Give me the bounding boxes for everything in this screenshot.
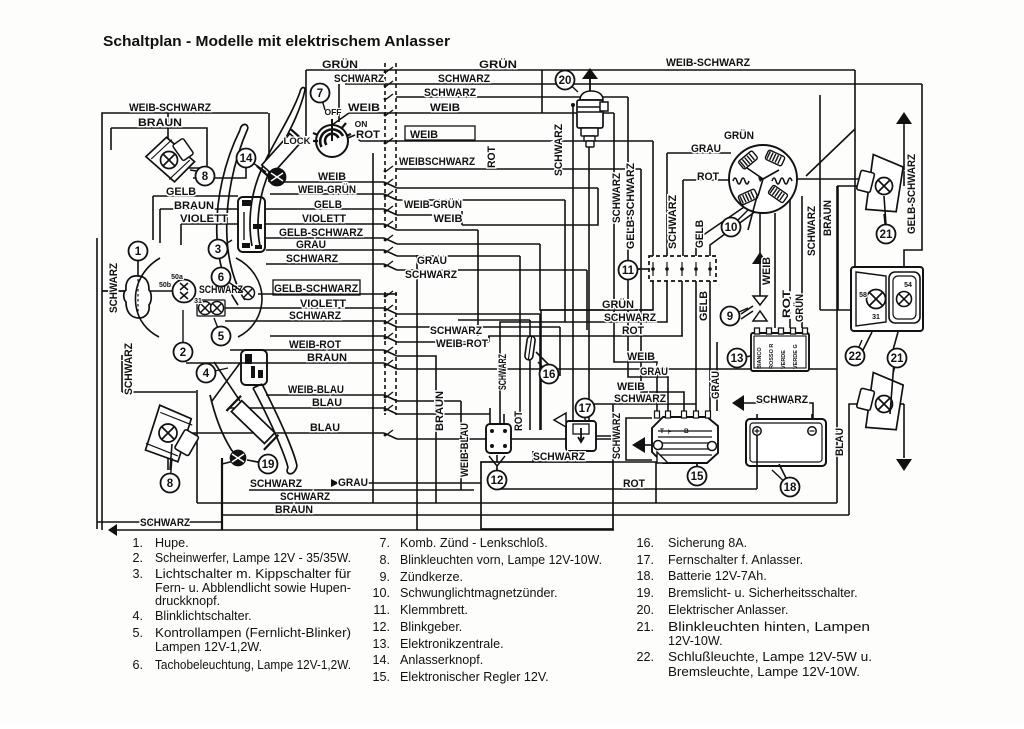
svg-text:ROT: ROT	[781, 290, 793, 318]
svg-text:SCHWARZ: SCHWARZ	[756, 394, 808, 406]
svg-text:ROT: ROT	[356, 129, 380, 141]
svg-text:SCHWARZ: SCHWARZ	[611, 173, 623, 223]
svg-text:Lampen 12V-1,2W.: Lampen 12V-1,2W.	[155, 640, 262, 654]
svg-text:Elektrischer Anlasser.: Elektrischer Anlasser.	[668, 603, 788, 617]
svg-text:50a: 50a	[171, 274, 183, 281]
svg-text:21: 21	[880, 229, 893, 241]
svg-text:19.: 19.	[636, 586, 654, 600]
svg-text:BRAUN: BRAUN	[434, 391, 446, 431]
svg-text:Blinkleuchten hinten, Lampen: Blinkleuchten hinten, Lampen	[668, 620, 870, 634]
svg-text:Blinkgeber.: Blinkgeber.	[400, 620, 462, 634]
svg-text:WEIB-SCHWARZ: WEIB-SCHWARZ	[666, 57, 750, 69]
svg-text:15.: 15.	[372, 670, 390, 684]
svg-text:WEIB: WEIB	[761, 257, 773, 285]
svg-text:Anlasserknopf.: Anlasserknopf.	[400, 653, 483, 667]
svg-text:Fernschalter f. Anlasser.: Fernschalter f. Anlasser.	[668, 553, 803, 567]
svg-text:5: 5	[218, 331, 225, 343]
svg-text:11: 11	[622, 265, 635, 277]
svg-text:20: 20	[559, 75, 572, 87]
svg-text:SCHWARZ: SCHWARZ	[334, 73, 384, 85]
svg-text:Komb. Zünd - Lenkschloß.: Komb. Zünd - Lenkschloß.	[400, 536, 548, 550]
svg-text:6.: 6.	[132, 658, 143, 672]
svg-text:GRAU: GRAU	[296, 239, 326, 251]
svg-text:Schaltplan - Modelle mit elekt: Schaltplan - Modelle mit elektrischem An…	[103, 33, 450, 50]
svg-text:SCHWARZ: SCHWARZ	[424, 87, 476, 99]
svg-text:1: 1	[135, 246, 142, 258]
svg-text:WEIB-BLAU: WEIB-BLAU	[288, 384, 344, 396]
svg-text:SCHWARZ: SCHWARZ	[604, 312, 656, 324]
svg-text:SCHWARZ: SCHWARZ	[553, 124, 565, 176]
svg-text:GELB-SCHWARZ: GELB-SCHWARZ	[906, 154, 918, 234]
svg-text:11.: 11.	[373, 603, 390, 617]
svg-text:SCHWARZ: SCHWARZ	[140, 517, 190, 529]
svg-text:GELB: GELB	[166, 186, 196, 198]
svg-text:ON: ON	[355, 119, 368, 129]
svg-text:Schlußleuchte, Lampe 12V-5W u.: Schlußleuchte, Lampe 12V-5W u.	[668, 650, 872, 664]
svg-text:Zündkerze.: Zündkerze.	[400, 570, 463, 584]
svg-text:GRÜN: GRÜN	[724, 129, 754, 142]
svg-text:17: 17	[579, 403, 592, 415]
svg-text:SCHWARZ: SCHWARZ	[280, 491, 330, 503]
svg-text:WEIB: WEIB	[410, 129, 438, 141]
svg-text:Kontrollampen (Fernlicht-Blink: Kontrollampen (Fernlicht-Blinker)	[155, 626, 351, 640]
svg-text:SCHWARZ: SCHWARZ	[108, 263, 120, 313]
svg-text:12: 12	[491, 475, 504, 487]
svg-text:16: 16	[543, 369, 556, 381]
svg-text:GELB: GELB	[694, 220, 706, 248]
svg-text:WEIB-BLAU: WEIB-BLAU	[459, 423, 471, 477]
svg-text:Scheinwerfer, Lampe 12V - 35/3: Scheinwerfer, Lampe 12V - 35/35W.	[155, 551, 351, 565]
svg-text:BLAU: BLAU	[310, 422, 340, 434]
svg-text:BLAU: BLAU	[312, 397, 342, 409]
svg-text:Fern- u. Abblendlicht sowie Hu: Fern- u. Abblendlicht sowie Hupen-	[155, 581, 351, 595]
svg-text:50b: 50b	[159, 282, 171, 289]
svg-text:VIOLETT: VIOLETT	[180, 213, 228, 225]
svg-text:12.: 12.	[372, 620, 390, 634]
svg-text:ROSSO R: ROSSO R	[769, 344, 775, 369]
svg-text:WEIBSCHWARZ: WEIBSCHWARZ	[399, 156, 475, 168]
svg-text:SCHWARZ: SCHWARZ	[286, 253, 338, 265]
svg-text:Hupe.: Hupe.	[155, 536, 189, 550]
svg-text:BRAUN: BRAUN	[307, 352, 347, 364]
svg-text:8: 8	[167, 478, 174, 490]
svg-text:SCHWARZ: SCHWARZ	[250, 478, 302, 490]
svg-text:WEIB: WEIB	[627, 351, 655, 363]
svg-text:9: 9	[727, 311, 733, 323]
svg-text:31: 31	[872, 314, 880, 321]
svg-text:GRÜN: GRÜN	[602, 298, 634, 311]
svg-text:GRÜN: GRÜN	[793, 294, 806, 322]
svg-text:WEIB: WEIB	[348, 102, 380, 114]
svg-text:OFF: OFF	[325, 107, 342, 117]
svg-text:10: 10	[725, 222, 738, 234]
svg-text:GELB: GELB	[314, 199, 342, 211]
svg-text:15: 15	[691, 471, 704, 483]
svg-text:WEIB-ROT: WEIB-ROT	[289, 339, 341, 351]
svg-text:13.: 13.	[372, 637, 390, 651]
svg-text:SCHWARZ: SCHWARZ	[123, 343, 135, 395]
svg-text:SCHWARZ: SCHWARZ	[289, 310, 341, 322]
svg-text:BLAU: BLAU	[834, 428, 846, 456]
svg-text:22: 22	[849, 351, 862, 363]
svg-text:8: 8	[202, 171, 209, 183]
svg-text:SCHWARZ: SCHWARZ	[497, 354, 509, 390]
svg-text:21.: 21.	[636, 620, 654, 634]
svg-text:8.: 8.	[379, 553, 390, 567]
svg-text:WEIB: WEIB	[430, 102, 460, 114]
svg-text:BRAUN: BRAUN	[275, 504, 313, 516]
svg-text:22.: 22.	[636, 650, 654, 664]
svg-text:GRAU: GRAU	[338, 477, 368, 489]
svg-text:Lichtschalter m. Kippschalter: Lichtschalter m. Kippschalter für	[155, 567, 351, 581]
svg-text:9.: 9.	[379, 570, 390, 584]
svg-text:SCHWARZ: SCHWARZ	[667, 195, 679, 249]
svg-text:3: 3	[215, 244, 221, 256]
svg-text:14.: 14.	[372, 653, 390, 667]
svg-text:21: 21	[891, 353, 904, 365]
svg-text:SCHWARZ: SCHWARZ	[430, 325, 482, 337]
svg-text:13: 13	[731, 353, 744, 365]
svg-text:ROT: ROT	[486, 146, 498, 168]
svg-text:WEIB: WEIB	[617, 381, 645, 393]
svg-text:17.: 17.	[636, 553, 654, 567]
svg-text:ROT: ROT	[623, 478, 645, 490]
svg-text:Batterie 12V-7Ah.: Batterie 12V-7Ah.	[668, 569, 767, 583]
svg-text:GRAU: GRAU	[417, 255, 447, 267]
svg-text:B: B	[684, 428, 689, 435]
svg-text:LOCK: LOCK	[284, 136, 311, 147]
svg-text:58: 58	[859, 292, 867, 299]
svg-text:54: 54	[904, 282, 912, 289]
svg-text:BRAUN: BRAUN	[138, 117, 182, 129]
svg-text:VERDE G: VERDE G	[793, 344, 799, 369]
svg-text:GELB-SCHWARZ: GELB-SCHWARZ	[279, 227, 363, 239]
svg-text:16.: 16.	[636, 536, 654, 550]
svg-text:GELB-SCHWARZ: GELB-SCHWARZ	[274, 283, 358, 295]
svg-text:GRÜN: GRÜN	[479, 58, 517, 71]
svg-text:31: 31	[194, 298, 202, 305]
svg-text:12V-10W.: 12V-10W.	[668, 634, 723, 648]
svg-text:Elektronikzentrale.: Elektronikzentrale.	[400, 637, 504, 651]
svg-text:Blinkleuchten vorn, Lampe 12V-: Blinkleuchten vorn, Lampe 12V-10W.	[400, 553, 602, 567]
svg-text:19: 19	[262, 459, 275, 471]
svg-text:Blinklichtschalter.: Blinklichtschalter.	[155, 609, 252, 623]
svg-text:SCHWARZ: SCHWARZ	[806, 206, 818, 256]
svg-text:SCHWARZ: SCHWARZ	[405, 269, 457, 281]
svg-text:2: 2	[180, 347, 186, 359]
svg-text:WEIB-GRÜN: WEIB-GRÜN	[298, 183, 356, 196]
svg-text:Schwunglichtmagnetzünder.: Schwunglichtmagnetzünder.	[400, 586, 558, 600]
svg-text:SCHWARZ: SCHWARZ	[533, 451, 585, 463]
svg-text:GELB-SCHWARZ: GELB-SCHWARZ	[625, 163, 637, 249]
svg-text:GRÜN: GRÜN	[322, 58, 358, 71]
svg-text:SCHWARZ: SCHWARZ	[611, 413, 623, 459]
svg-text:5.: 5.	[132, 626, 143, 640]
svg-text:18.: 18.	[636, 569, 654, 583]
svg-text:7.: 7.	[379, 536, 390, 550]
svg-text:VERDE: VERDE	[781, 350, 787, 369]
svg-text:VIOLETT: VIOLETT	[302, 213, 346, 225]
svg-text:WEIB-SCHWARZ: WEIB-SCHWARZ	[129, 102, 211, 114]
svg-text:4: 4	[203, 368, 210, 380]
svg-text:7: 7	[317, 88, 323, 100]
svg-text:WEIB: WEIB	[318, 171, 346, 183]
svg-text:Bremslicht- u. Sicherheitsscha: Bremslicht- u. Sicherheitsschalter.	[668, 586, 858, 600]
svg-text:druckknopf.: druckknopf.	[155, 594, 220, 608]
svg-text:Sicherung 8A.: Sicherung 8A.	[668, 536, 747, 550]
svg-text:18: 18	[784, 482, 797, 494]
svg-text:Klemmbrett.: Klemmbrett.	[400, 603, 468, 617]
svg-text:1.: 1.	[132, 536, 143, 550]
svg-text:10.: 10.	[372, 586, 390, 600]
svg-text:BRAUN: BRAUN	[174, 200, 214, 212]
svg-text:20.: 20.	[636, 603, 654, 617]
svg-text:ROT: ROT	[513, 411, 525, 431]
svg-text:ROT: ROT	[697, 171, 719, 183]
svg-text:4.: 4.	[132, 609, 143, 623]
svg-text:WEIB-ROT: WEIB-ROT	[436, 338, 488, 350]
svg-text:WEIB-GRÜN: WEIB-GRÜN	[404, 198, 462, 211]
svg-text:14: 14	[240, 153, 253, 165]
svg-text:BRAUN: BRAUN	[822, 200, 834, 236]
svg-text:2.: 2.	[132, 551, 143, 565]
svg-text:VIOLETT: VIOLETT	[300, 298, 346, 310]
svg-text:WEIB: WEIB	[434, 213, 463, 225]
svg-text:Tachobeleuchtung, Lampe 12V-1,: Tachobeleuchtung, Lampe 12V-1,2W.	[155, 658, 351, 672]
svg-text:GRAU: GRAU	[691, 143, 721, 155]
svg-text:6: 6	[218, 272, 224, 284]
svg-text:GRAU: GRAU	[710, 371, 722, 399]
svg-text:Elektronischer Regler 12V.: Elektronischer Regler 12V.	[400, 670, 549, 684]
svg-text:SCHWARZ: SCHWARZ	[438, 73, 490, 85]
svg-text:BIANCO: BIANCO	[757, 347, 763, 369]
svg-text:Bremsleuchte, Lampe 12V-10W.: Bremsleuchte, Lampe 12V-10W.	[668, 665, 860, 679]
svg-text:3.: 3.	[132, 567, 143, 581]
svg-text:GELB: GELB	[698, 291, 710, 321]
svg-text:ROT: ROT	[622, 325, 644, 337]
svg-text:GRAU: GRAU	[640, 366, 668, 378]
svg-text:SCHWARZ: SCHWARZ	[614, 393, 666, 405]
svg-text:T: T	[660, 428, 664, 435]
